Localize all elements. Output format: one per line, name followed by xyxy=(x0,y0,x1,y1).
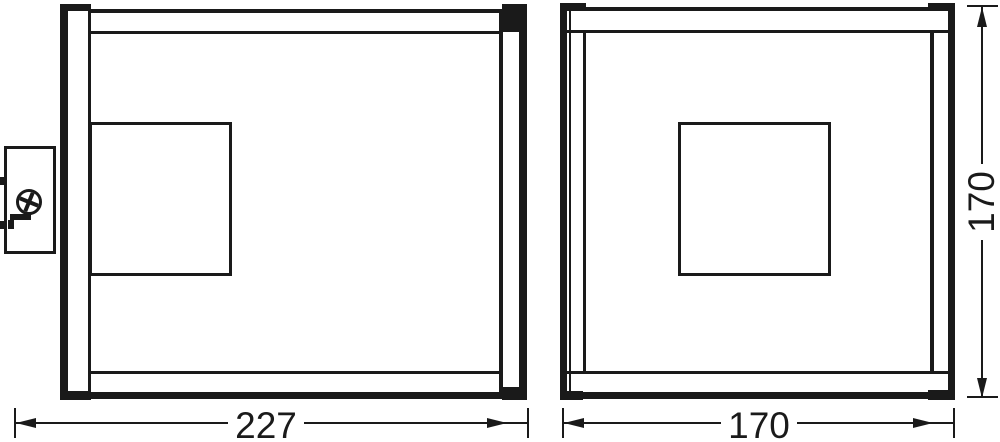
front-left-thin-line xyxy=(569,8,571,395)
arrowhead-down-icon xyxy=(977,378,987,398)
side-bottom-rail-top-line xyxy=(88,371,502,374)
front-bottom-left-cap xyxy=(560,391,583,400)
side-inner-panel xyxy=(89,122,232,276)
front-left-inner-line xyxy=(583,31,586,372)
side-top-right-cap xyxy=(502,4,527,32)
arrowhead-up-icon xyxy=(977,7,987,27)
front-top-rail-top-line xyxy=(567,7,948,11)
side-backplate-bar xyxy=(60,4,68,400)
dimension-label-front-height: 170 xyxy=(965,164,999,240)
bracket-tab-top xyxy=(0,177,6,185)
front-top-left-cap xyxy=(560,3,586,9)
arrowhead-right-icon xyxy=(913,418,933,428)
side-bottom-left-cap xyxy=(60,391,91,400)
front-bottom-rail-bottom-line xyxy=(567,392,948,399)
front-top-rail-bottom-line xyxy=(567,30,948,33)
dimension-line-top-segment xyxy=(981,7,983,164)
front-left-outer-bar xyxy=(560,3,567,400)
side-bottom-rail-bottom-line xyxy=(88,392,502,399)
phillips-screw-icon xyxy=(16,189,42,215)
extension-line-right xyxy=(953,408,955,438)
dimension-line-left-segment xyxy=(564,422,722,424)
side-right-outer-bar xyxy=(519,4,527,400)
dimension-line-bottom-segment xyxy=(981,240,983,396)
front-inner-panel xyxy=(678,122,831,276)
side-top-rail-top-line xyxy=(88,9,502,13)
front-bottom-rail-top-line xyxy=(567,371,948,374)
front-bottom-right-cap xyxy=(928,390,955,400)
side-top-rail-bottom-line xyxy=(88,31,502,34)
front-top-right-cap xyxy=(928,3,955,10)
arrowhead-left-icon xyxy=(16,418,36,428)
arrowhead-right-icon xyxy=(487,418,507,428)
dimension-label-front-width: 170 xyxy=(721,409,797,442)
technical-drawing: 227 170 170 xyxy=(0,0,1000,442)
bracket-tab-bottom xyxy=(0,221,6,229)
side-bottom-right-cap xyxy=(502,387,527,400)
screw-cross-slots xyxy=(16,189,42,215)
dimension-label-side-width: 227 xyxy=(228,409,304,442)
dimension-line-left-segment xyxy=(16,422,228,424)
side-right-inner-line xyxy=(499,9,503,395)
mount-arm-step xyxy=(8,220,14,229)
side-top-left-cap xyxy=(60,4,91,11)
extension-line-right xyxy=(527,408,529,438)
front-right-outer-bar xyxy=(948,3,955,400)
arrowhead-left-icon xyxy=(564,418,584,428)
front-right-inner-line xyxy=(930,31,934,372)
